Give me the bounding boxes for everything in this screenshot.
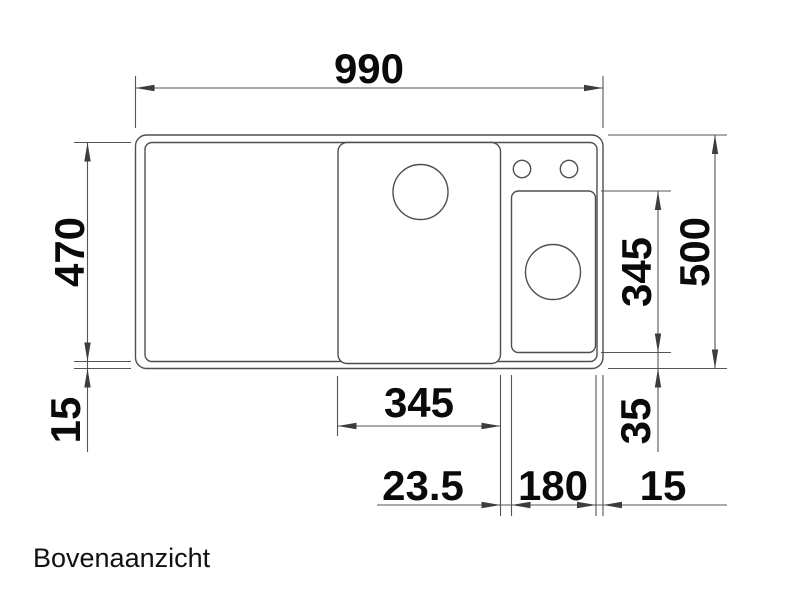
- dim-label-overall-width: 990: [334, 45, 404, 92]
- arrowhead: [136, 85, 155, 91]
- dimension-rim-offset-bottom-left: 15: [42, 369, 91, 444]
- arrowhead: [482, 423, 501, 429]
- arrowhead: [84, 343, 90, 362]
- arrowhead: [655, 369, 661, 388]
- arrowhead: [603, 502, 622, 508]
- dim-label-rim-offset-bottom-left: 15: [42, 397, 89, 444]
- dim-label-main-bowl-width: 345: [384, 379, 454, 426]
- tap-hole-left: [513, 160, 530, 177]
- arrowhead: [84, 369, 90, 388]
- arrowhead: [655, 334, 661, 353]
- small-bowl-drain-hole: [526, 245, 581, 300]
- dimension-small-bowl-offset-bottom: 35: [612, 369, 661, 445]
- arrowhead: [84, 143, 90, 162]
- sink-top-view-drawing: 990 470 15 500: [0, 0, 799, 600]
- dim-label-small-bowl-width: 180: [518, 462, 588, 509]
- view-caption: Bovenaanzicht: [33, 543, 211, 573]
- dim-label-small-bowl-offset-bottom: 35: [612, 398, 659, 445]
- dim-label-small-bowl-depth: 345: [613, 237, 660, 307]
- dimension-overall-width: 990: [136, 45, 604, 128]
- dim-label-bowl-gap: 23.5: [382, 462, 464, 509]
- dim-label-rim-offset-right: 15: [640, 462, 687, 509]
- tap-hole-right: [560, 160, 577, 177]
- arrowhead: [482, 502, 501, 508]
- technical-drawing-page: 990 470 15 500: [0, 0, 799, 600]
- main-bowl-drain-hole: [393, 165, 448, 220]
- arrowhead: [712, 135, 718, 154]
- sink-outline: [136, 135, 604, 369]
- arrowhead: [712, 350, 718, 369]
- arrowhead: [338, 423, 357, 429]
- arrowhead: [584, 85, 603, 91]
- dim-label-inner-rim-depth: 470: [46, 217, 93, 287]
- dim-label-overall-depth: 500: [671, 217, 718, 287]
- arrowhead: [655, 191, 661, 210]
